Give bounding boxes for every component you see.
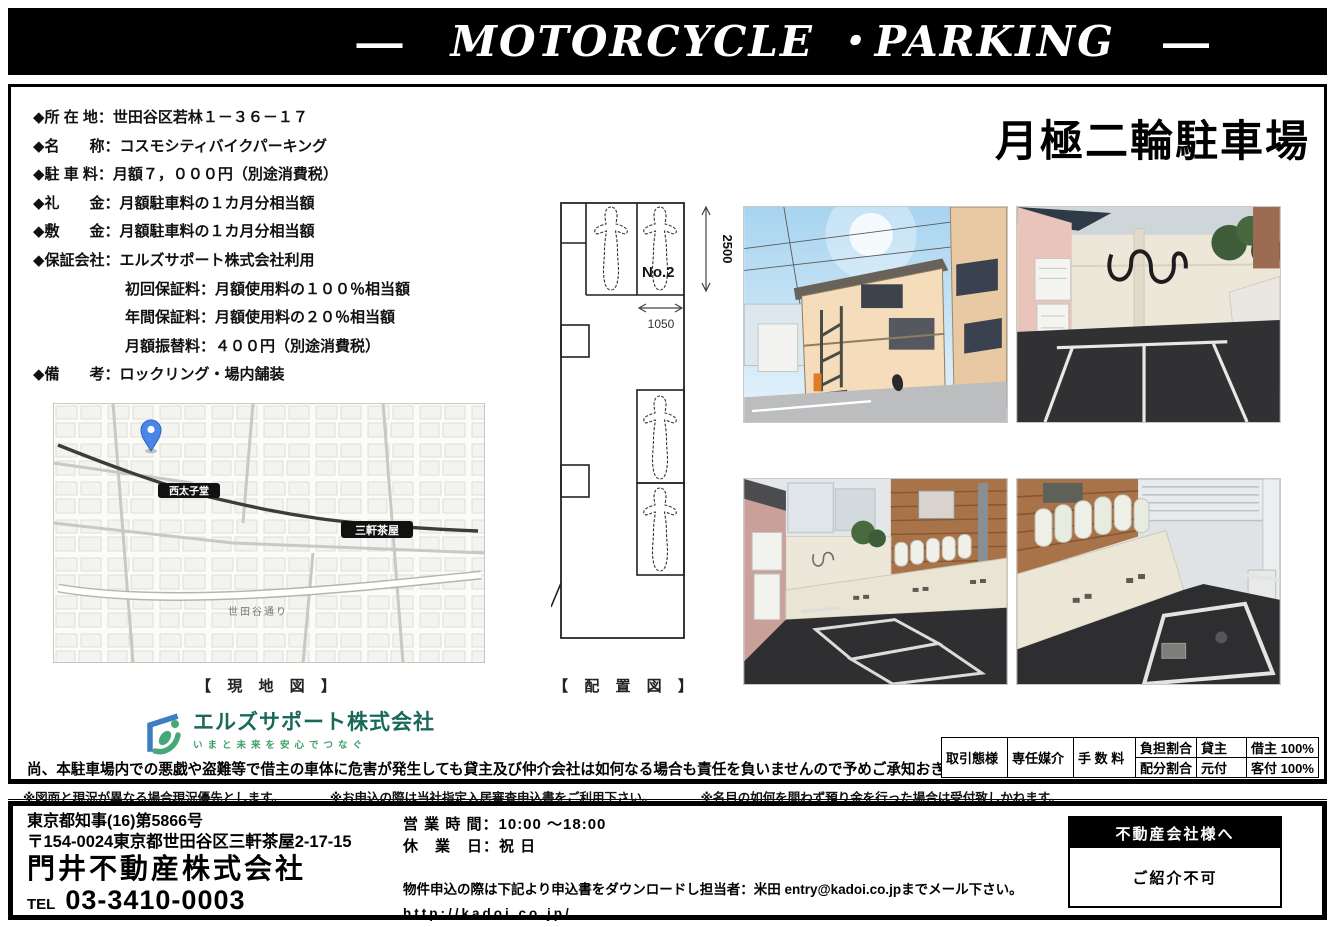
property-details: ◆所 在 地：世田谷区若林１－３６－１７ ◆名 称：コスモシティバイクパーキング… [33,104,553,390]
footer-company-block: 東京都知事(16)第5866号 〒154-0024東京都世田谷区三軒茶屋2-17… [27,812,352,916]
company-address: 〒154-0024東京都世田谷区三軒茶屋2-17-15 [27,832,352,853]
diagram-dim-arrow-horizontal [639,304,682,312]
liability-disclaimer: 尚、本駐車場内での悪戯や盗難等で借主の車体に危害が発生しても貸主及び仲介会社は如… [27,758,935,779]
license-number: 東京都知事(16)第5866号 [27,812,352,832]
detail-fee: ◆駐 車 料：月額７，０００円（別途消費税） [33,161,553,190]
ground-plate [1162,643,1186,658]
detail-initial-guarantee: 初回保証料：月額使用料の１００％相当額 [33,276,553,305]
agent-notice-box: 不動産会社様へ ご紹介不可 [1068,816,1282,908]
map-station-main-label: 三軒茶屋 [355,523,399,537]
notes-bar: ※図面と現況が異なる場合現況優先とします。 ※お申込の際は当社指定入居審査申込書… [8,787,1327,800]
map-station-west-label: 西太子堂 [169,485,209,498]
guarantor-logo-icon [139,711,185,757]
motorcycle-icon [595,207,628,290]
banner-dash-right: — [1163,19,1209,65]
guarantor-tagline: いまと未来を安心でつなぐ [193,737,435,751]
detail-name: ◆名 称：コスモシティバイクパーキング [33,133,553,162]
diagram-space-number: No.2 [642,264,675,281]
agent-notice-body: ご紹介不可 [1070,848,1280,906]
photo-parking-alley [743,478,1008,685]
diagram-caption: 【 配 置 図 】 [506,675,746,696]
detail-guarantor: ◆保証会社：エルズサポート株式会社利用 [33,247,553,276]
detail-annual-guarantee: 年間保証料：月額使用料の２０％相当額 [33,304,553,333]
ac-units [752,532,782,619]
guarantor-company-name: エルズサポート株式会社 [193,711,435,734]
header-banner: — MOTORCYCLE ・PARKING — [8,8,1327,75]
detail-deposit: ◆敷 金：月額駐車料の１カ月分相当額 [33,218,553,247]
deal-fee-label: 手 数 料 [1074,738,1136,778]
diagram-dim-vertical-label: 2500 [720,235,735,264]
diagram-dim-arrow-vertical [702,207,710,291]
footer: 東京都知事(16)第5866号 〒154-0024東京都世田谷区三軒茶屋2-17… [8,801,1327,920]
footer-hours-block: 営 業 時 間：10:00 ～18:00 休 業 日：祝 日 物件申込の際は下記… [403,814,1063,921]
manhole [1215,632,1227,644]
map-caption: 【 現 地 図 】 [53,675,485,696]
telephone-line: TEL 03-3410-0003 [27,885,352,916]
deal-type-label: 取引態様 [942,738,1008,778]
map-road-label: 世田谷通り [228,606,288,618]
diagram-dim-horizontal-label: 1050 [648,317,675,331]
website-url: http://kadoi.co.jp/ [403,906,1063,921]
flyer-page: — MOTORCYCLE ・PARKING — ◆所 在 地：世田谷区若林１－３… [0,0,1335,927]
tel-label: TEL [27,896,55,913]
photo-parking-lot-front [1016,206,1281,423]
page-title: 月極二輪駐車場 [995,107,1310,169]
detail-location: ◆所 在 地：世田谷区若林１－３６－１７ [33,104,553,133]
detail-remarks: ◆備 考：ロックリング・場内舗装 [33,361,553,390]
application-note: 物件申込の際は下記より申込書をダウンロードし担当者：米田 entry@kadoi… [403,878,1063,898]
location-map: 西太子堂 三軒茶屋 世田谷通り [53,403,485,663]
deal-burden-label: 負担割合 [1136,738,1197,758]
business-hours: 営 業 時 間：10:00 ～18:00 [403,814,1063,836]
banner-title: MOTORCYCLE ・PARKING [450,21,1115,63]
motorcycle-icon [644,488,677,571]
banner-dash-left: — [356,19,402,65]
photo-parking-spaces-close [1016,478,1281,685]
layout-diagram: No.2 2500 1050 [551,195,743,665]
map-background [53,403,485,663]
main-content-frame: ◆所 在 地：世田谷区若林１－３６－１７ ◆名 称：コスモシティバイクパーキング… [8,84,1327,784]
guarantor-logo: エルズサポート株式会社 いまと未来を安心でつなぐ [139,711,435,757]
deal-split-label: 配分割合 [1136,758,1197,778]
deal-split-agent: 客付 100% [1247,758,1319,778]
photo-grid [743,206,1283,685]
deal-burden-value: 貸主 [1197,738,1247,758]
deal-split-value: 元付 [1197,758,1247,778]
photo-building-exterior [743,206,1008,423]
closed-days: 休 業 日：祝 日 [403,836,1063,858]
deal-burden-tenant: 借主 100% [1247,738,1319,758]
agent-notice-header: 不動産会社様へ [1070,818,1280,848]
motorcycle-icon [644,396,677,479]
deal-type-value: 専任媒介 [1008,738,1074,778]
background-building [1136,479,1265,521]
transaction-table: 取引態様 専任媒介 手 数 料 負担割合 貸主 借主 100% 配分割合 元付 … [941,737,1319,778]
tel-number: 03-3410-0003 [65,885,245,916]
traffic-cone [814,373,822,391]
detail-key-money: ◆礼 金：月額駐車料の１カ月分相当額 [33,190,553,219]
company-name: 門井不動産株式会社 [27,853,352,885]
detail-transfer-fee: 月額振替料：４００円（別途消費税） [33,333,553,362]
